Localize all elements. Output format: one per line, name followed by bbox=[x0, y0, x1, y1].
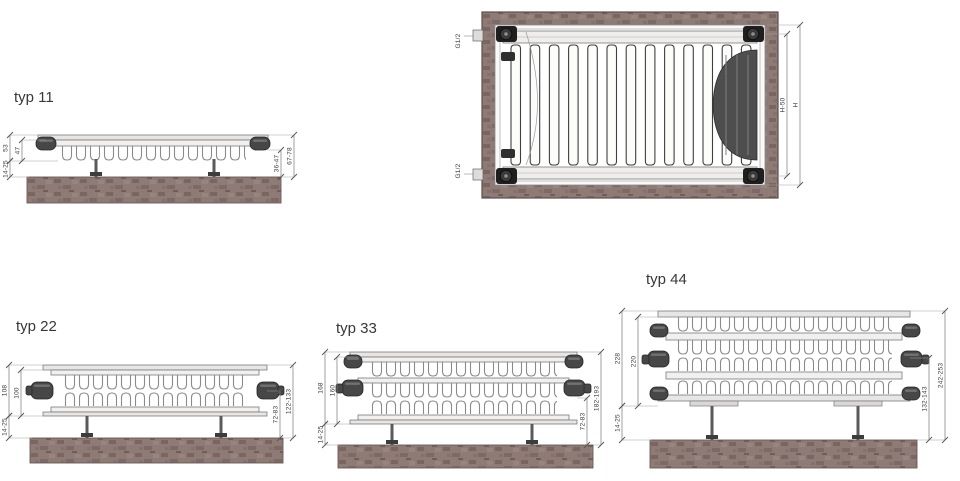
water-panel bbox=[666, 333, 902, 340]
water-panel bbox=[358, 415, 569, 420]
top-grille bbox=[43, 365, 267, 370]
convector-fin-row bbox=[676, 379, 892, 394]
water-panel bbox=[358, 378, 569, 383]
wall-bracket bbox=[208, 159, 220, 177]
dimension: H-50 bbox=[780, 31, 791, 179]
water-channel bbox=[588, 45, 598, 165]
bracket-plate bbox=[834, 401, 882, 406]
front-height-inner-label: H-50 bbox=[780, 97, 787, 112]
bottom-edge bbox=[350, 420, 577, 424]
water-panel bbox=[46, 140, 260, 146]
water-channel bbox=[703, 45, 713, 165]
typ22-depth-panel-label: 100 bbox=[14, 387, 21, 399]
typ44-wall-gap-label: 14-25 bbox=[615, 414, 622, 432]
convector-fin-row bbox=[370, 362, 557, 377]
wall-strip bbox=[30, 438, 283, 463]
end-cap-highlight bbox=[653, 327, 665, 329]
end-cap bbox=[901, 351, 922, 367]
dimension: 14-25 bbox=[3, 158, 14, 180]
typ22-section-view: typ 2210814-2510072-83122-133 bbox=[2, 318, 297, 463]
dimension: 122-133 bbox=[286, 362, 297, 441]
front-height-outer-label: H bbox=[793, 102, 800, 107]
convector-fin-row bbox=[676, 317, 892, 332]
wall-strip bbox=[27, 177, 281, 203]
drawing-layer: typ 115314-254736-4767-78G1/2G1/2H-50Hty… bbox=[2, 12, 949, 468]
technical-drawing-canvas: typ 115314-254736-4767-78G1/2G1/2H-50Hty… bbox=[0, 0, 960, 481]
radiator-technical-drawing: typ 115314-254736-4767-78G1/2G1/2H-50Hty… bbox=[0, 0, 960, 481]
typ11-title: typ 11 bbox=[14, 89, 54, 106]
typ44-section-view: typ 4422814-25220132-143242-253 bbox=[615, 271, 949, 468]
water-channel bbox=[607, 45, 617, 165]
convector-fin-row bbox=[676, 356, 892, 371]
end-cap bbox=[650, 324, 668, 337]
wall-bracket bbox=[215, 416, 227, 438]
wall-bracket bbox=[90, 159, 102, 177]
end-cap-highlight bbox=[567, 383, 582, 385]
end-cap bbox=[565, 355, 583, 368]
end-cap bbox=[342, 380, 363, 396]
end-cap-highlight bbox=[651, 354, 666, 356]
connection-stub bbox=[473, 30, 483, 41]
dimension: 108 bbox=[2, 362, 13, 419]
top-grille bbox=[658, 311, 910, 317]
wall-bracket bbox=[526, 424, 538, 445]
end-cap bbox=[902, 324, 920, 337]
typ11-depth-total-label: 53 bbox=[3, 144, 10, 152]
end-cap-highlight bbox=[904, 354, 919, 356]
end-cap-highlight bbox=[653, 390, 665, 392]
bracket-block bbox=[501, 149, 515, 158]
end-cap bbox=[902, 387, 920, 400]
end-cap bbox=[564, 380, 585, 396]
dimension: 36-47 bbox=[274, 147, 285, 180]
bracket-block bbox=[501, 52, 515, 61]
convector-fin-row bbox=[63, 391, 247, 406]
end-cap-highlight bbox=[34, 385, 50, 387]
typ44-depth-total-label: 228 bbox=[615, 353, 622, 365]
dimension: 132-143 bbox=[922, 355, 933, 443]
convector-fin-row bbox=[63, 375, 247, 390]
typ44-right-outer-label: 242-253 bbox=[938, 363, 945, 388]
end-cap-highlight bbox=[905, 390, 917, 392]
bottom-edge bbox=[658, 395, 910, 401]
connection-boss bbox=[584, 384, 591, 393]
front-view: G1/2G1/2H-50H bbox=[455, 12, 803, 198]
typ33-depth-total-label: 168 bbox=[318, 382, 325, 394]
wall-bracket bbox=[81, 416, 93, 438]
water-channel bbox=[665, 45, 675, 165]
convector-fin-row bbox=[370, 383, 557, 398]
end-cap bbox=[650, 387, 668, 400]
dimension: 242-253 bbox=[938, 308, 949, 443]
connection-stub bbox=[473, 169, 483, 180]
convector-fin-row bbox=[60, 146, 246, 161]
end-cap bbox=[648, 351, 669, 367]
dimension: 168 bbox=[318, 349, 329, 427]
dimension: 14-25 bbox=[318, 421, 329, 448]
dimension: 72-83 bbox=[580, 395, 591, 448]
wall-strip bbox=[338, 445, 593, 468]
convector-fin-row bbox=[676, 340, 892, 355]
typ33-right-outer-label: 182-193 bbox=[594, 386, 601, 411]
typ11-right-outer-label: 67-78 bbox=[287, 147, 294, 165]
dimension: 47 bbox=[15, 137, 26, 164]
water-channel bbox=[684, 45, 694, 165]
connection-bottom-label: G1/2 bbox=[455, 163, 462, 178]
dimension: H bbox=[793, 22, 804, 188]
dimension: 220 bbox=[631, 314, 642, 409]
dimension: 67-78 bbox=[287, 132, 298, 180]
dimension: 100 bbox=[14, 367, 25, 419]
typ11-right-inner-label: 36-47 bbox=[274, 155, 281, 173]
typ44-title: typ 44 bbox=[646, 271, 687, 288]
typ22-right-inner-label: 72-83 bbox=[273, 406, 280, 424]
typ44-depth-panel-label: 220 bbox=[631, 356, 638, 368]
wall-bracket bbox=[386, 424, 398, 445]
end-cap bbox=[36, 137, 56, 150]
end-cap-highlight bbox=[253, 140, 267, 142]
typ11-depth-panel-label: 47 bbox=[15, 147, 22, 155]
connection-boss bbox=[642, 355, 649, 364]
end-cap-highlight bbox=[568, 358, 580, 360]
water-panel bbox=[358, 357, 569, 362]
end-cap bbox=[250, 137, 270, 150]
typ33-depth-panel-label: 160 bbox=[330, 385, 337, 397]
end-cap-highlight bbox=[905, 327, 917, 329]
typ22-depth-total-label: 108 bbox=[2, 385, 9, 397]
typ33-title: typ 33 bbox=[336, 320, 377, 337]
end-cap-highlight bbox=[345, 383, 360, 385]
bracket-plate bbox=[690, 401, 738, 406]
water-panel bbox=[51, 407, 259, 412]
wall-bracket bbox=[852, 406, 864, 440]
end-cap-highlight bbox=[260, 385, 276, 387]
end-cap-highlight bbox=[347, 358, 359, 360]
bottom-edge bbox=[43, 412, 267, 416]
typ44-right-inner-label: 132-143 bbox=[922, 386, 929, 411]
connection-top-label: G1/2 bbox=[455, 33, 462, 48]
top-grille bbox=[350, 352, 577, 357]
typ22-right-outer-label: 122-133 bbox=[286, 389, 293, 414]
water-channel bbox=[511, 45, 521, 165]
water-channel bbox=[645, 45, 655, 165]
water-channel bbox=[626, 45, 636, 165]
convector-fin-row bbox=[370, 399, 557, 414]
water-channel bbox=[549, 45, 559, 165]
connection-boss bbox=[26, 386, 32, 395]
dimension: 14-25 bbox=[2, 413, 13, 441]
dimension: 182-193 bbox=[594, 349, 605, 448]
top-grille bbox=[38, 135, 268, 140]
water-panel bbox=[666, 372, 902, 379]
typ11-section-view: typ 115314-254736-4767-78 bbox=[3, 89, 298, 203]
water-channel bbox=[569, 45, 579, 165]
typ33-wall-gap-label: 14-25 bbox=[318, 426, 325, 444]
typ22-title: typ 22 bbox=[16, 318, 57, 335]
typ33-right-inner-label: 72-83 bbox=[580, 413, 587, 431]
typ11-wall-gap-label: 14-25 bbox=[3, 160, 10, 178]
wall-strip bbox=[650, 440, 917, 468]
dimension: 228 bbox=[615, 308, 626, 409]
typ22-wall-gap-label: 14-25 bbox=[2, 418, 9, 436]
dimension: 14-25 bbox=[615, 403, 626, 443]
water-panel bbox=[51, 370, 259, 375]
typ33-section-view: typ 3316814-2516072-83182-193 bbox=[318, 320, 605, 468]
wall-bracket bbox=[706, 406, 718, 440]
